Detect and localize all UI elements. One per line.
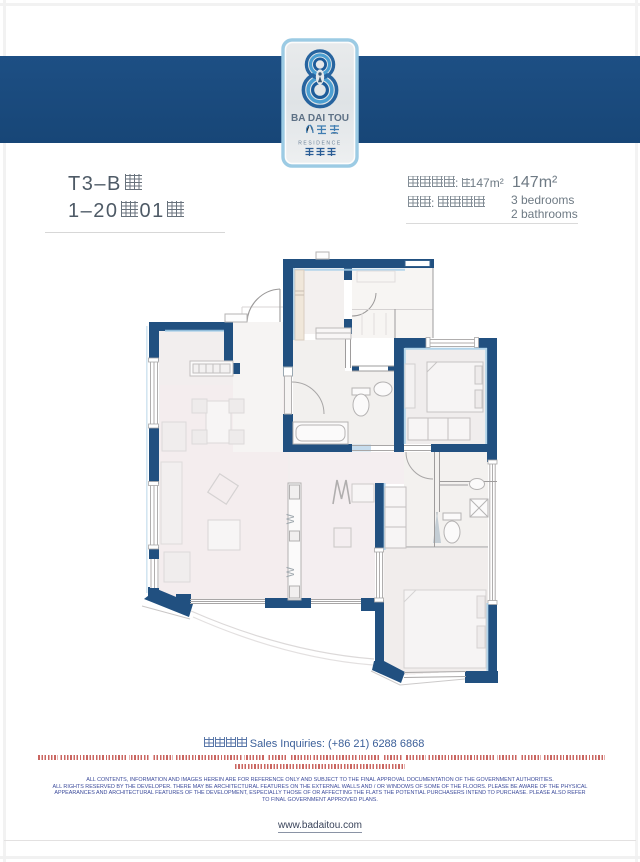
svg-text:RESIDENCE: RESIDENCE xyxy=(298,141,342,147)
svg-text:W: W xyxy=(285,566,297,577)
svg-text:W: W xyxy=(285,513,297,524)
svg-text:BA DAI TOU: BA DAI TOU xyxy=(291,113,349,124)
